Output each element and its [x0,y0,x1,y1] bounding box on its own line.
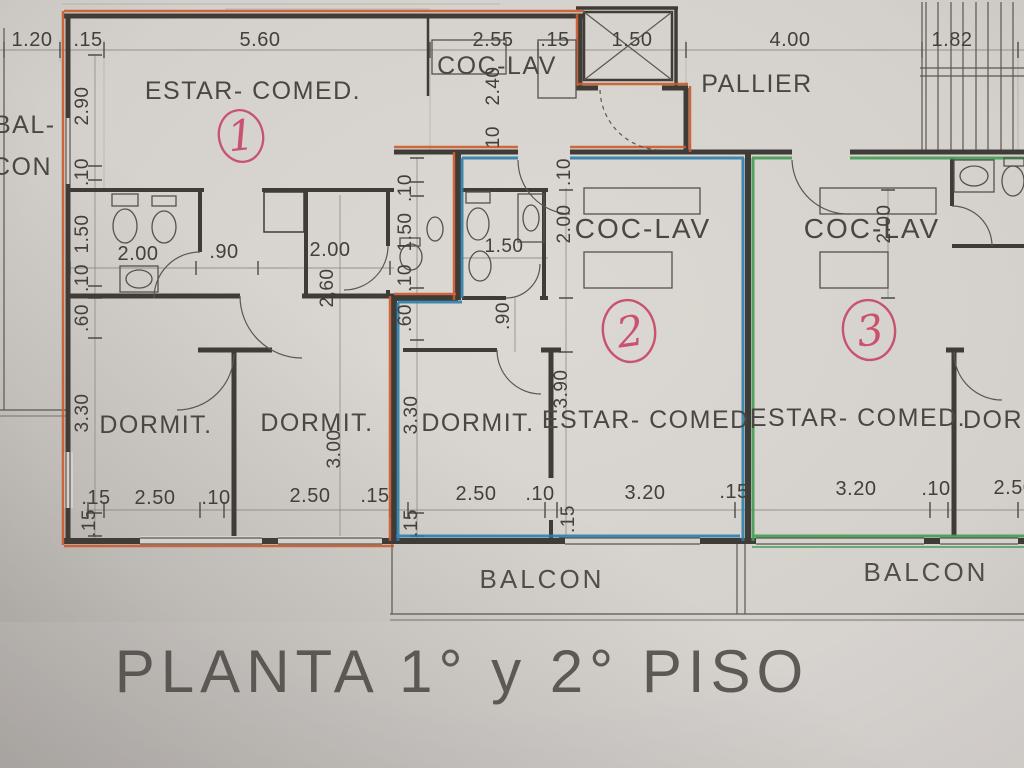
dim-u2-2: .10 [554,158,575,186]
dim-left-1: 2.90 [72,87,93,126]
dim-bottom-9: .15 [719,481,748,503]
dim-u2-5: 3.90 [551,370,572,409]
dim-bottom-7: .10 [525,483,554,505]
dim-top-7: 4.00 [770,29,811,51]
unit1-dorm2-label: DORMIT. [260,409,373,437]
dim-bottom-5: .15 [360,485,389,507]
dim-bath1-3: 2.00 [310,239,351,261]
dim-center-5: 3.30 [401,396,422,435]
dim-bath1-2: .90 [209,241,238,263]
dim-center-2: 1.50 [395,213,416,252]
dim-u2-3: 1.50 [485,236,524,257]
unit2-coclav-label: COC-LAV [575,213,711,244]
unit2-dorm-label: DORMIT. [421,409,534,437]
dim-bottom-4: 2.50 [290,485,331,507]
plan-title: PLANTA 1° y 2° PISO [115,638,809,705]
dim-u2-6: .15 [558,505,579,533]
dim-bottom-1: .15 [81,487,110,509]
dim-center-3: .10 [395,264,416,292]
dim-u2-1: 2.00 [554,205,575,244]
dim-left-7: .15 [79,509,100,537]
dim-u3-1: 2.00 [874,205,895,244]
dim-bottom-10: 3.20 [836,478,877,500]
dim-u2-4: .90 [493,302,514,330]
dim-bottom-6: 2.50 [456,483,497,505]
dim-u1rot-2: 3.00 [324,430,345,469]
dim-bottom-3: .10 [201,487,230,509]
floor-plan-photo: 1 2 3 ESTAR- COMED. COC-LAV PALLIER BAL-… [0,0,1024,768]
dim-bottom-11: .10 [921,478,950,500]
dim-u1rot-3: 2.40 [483,67,504,106]
dim-u1rot-4: .10 [483,126,504,154]
balcon3-label: BALCON [864,557,989,587]
dim-bottom-2: 2.50 [135,487,176,509]
balcon-left-label-1: BAL- [0,111,56,139]
dim-top-2: .15 [73,29,102,51]
dim-top-6: 1.50 [612,29,653,51]
dim-bottom-8: 3.20 [625,482,666,504]
dim-top-8: 1.82 [932,29,973,51]
floor-plan-drawing: 1 2 3 ESTAR- COMED. COC-LAV PALLIER BAL-… [0,0,1024,768]
dim-center-4: .60 [395,304,416,332]
dim-top-1: 1.20 [12,29,53,51]
dim-top-3: 5.60 [240,29,281,51]
dim-left-6: 3.30 [72,394,93,433]
dim-left-2: .10 [72,158,93,186]
dim-left-4: .10 [72,264,93,292]
dim-left-5: .60 [72,304,93,332]
dim-bottom-12: 2.50 [994,477,1024,499]
balcon2-label: BALCON [480,564,605,594]
dim-top-5: .15 [540,29,569,51]
dim-center-1: .10 [395,174,416,202]
unit1-dorm1-label: DORMIT. [99,411,212,439]
dim-u1rot-1: 2,60 [317,269,338,308]
dim-left-3: 1.50 [72,215,93,254]
unit3-dorm-label: DORMIT. [963,406,1024,434]
unit3-coclav-label: COC-LAV [804,213,940,244]
dim-bath1-1: 2.00 [118,243,159,265]
unit2-estar-label: ESTAR- COMED. [542,406,758,434]
unit3-estar-label: ESTAR- COMED. [750,404,966,432]
unit1-number: 1 [225,110,257,162]
pallier-label: PALLIER [701,70,812,98]
unit1-estar-label: ESTAR- COMED. [145,77,361,105]
balcon-left-label-2: CON [0,153,52,181]
dim-center-6: .15 [401,509,422,537]
dim-top-4: 2.55 [473,29,514,51]
